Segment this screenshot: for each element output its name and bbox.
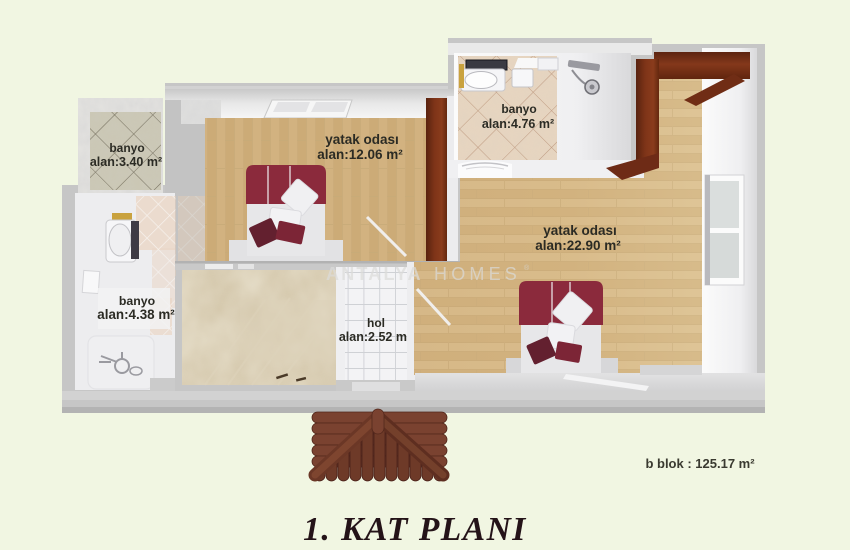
svg-text:1. KAT PLANI: 1. KAT PLANI	[303, 511, 527, 548]
svg-text:alan:22.90 m²: alan:22.90 m²	[535, 238, 621, 253]
svg-text:banyo: banyo	[119, 294, 156, 308]
svg-text:yatak odası: yatak odası	[325, 132, 399, 147]
svg-text:hol: hol	[367, 316, 385, 330]
svg-text:HOMES: HOMES	[434, 264, 521, 284]
svg-text:yatak odası: yatak odası	[543, 223, 617, 238]
svg-text:banyo: banyo	[501, 102, 536, 116]
svg-text:alan:3.40 m²: alan:3.40 m²	[90, 155, 162, 169]
svg-text:®: ®	[524, 264, 530, 272]
svg-text:banyo: banyo	[109, 141, 144, 155]
svg-text:alan:4.76 m²: alan:4.76 m²	[482, 117, 554, 131]
svg-text:ANTALYA: ANTALYA	[326, 264, 423, 284]
svg-text:alan:4.38 m²: alan:4.38 m²	[97, 307, 175, 322]
svg-text:alan:12.06 m²: alan:12.06 m²	[317, 147, 403, 162]
svg-text:b blok : 125.17 m²: b blok : 125.17 m²	[645, 456, 755, 471]
svg-text:alan:2.52 m²: alan:2.52 m²	[339, 330, 411, 344]
